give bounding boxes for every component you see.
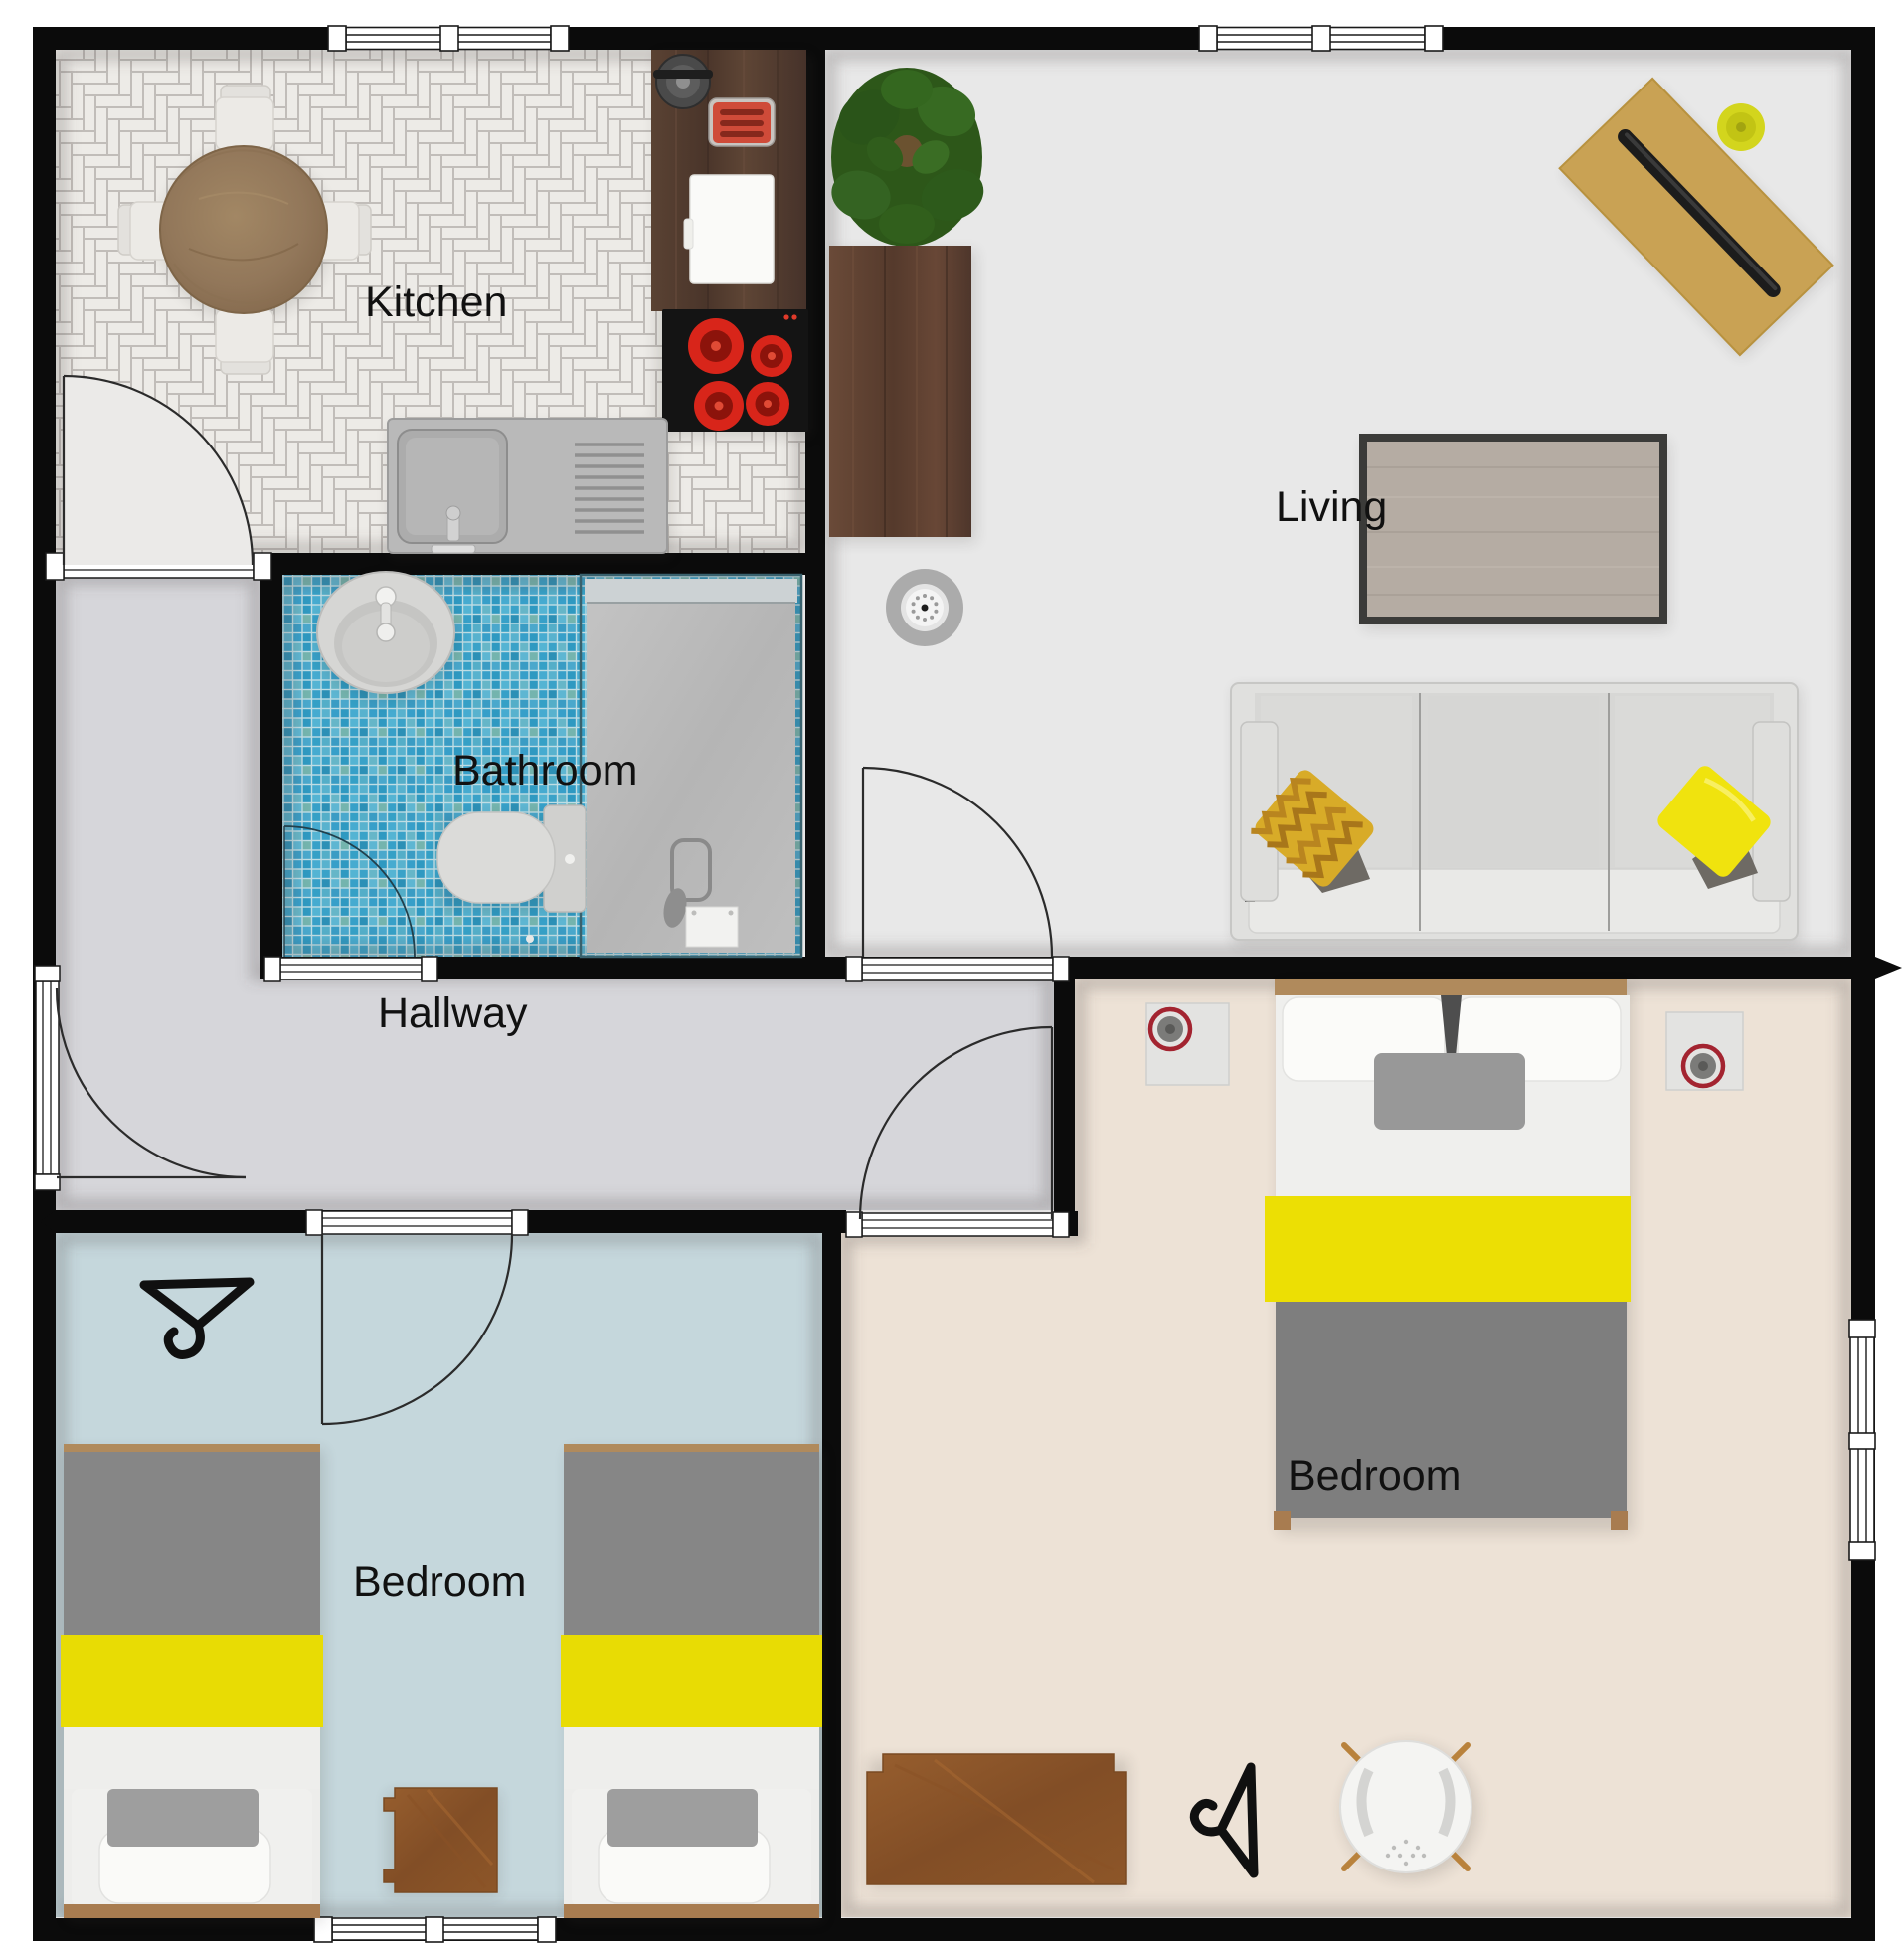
svg-text:Bedroom: Bedroom [1288,1452,1461,1500]
svg-text:Kitchen: Kitchen [365,278,507,326]
svg-text:Living: Living [1276,483,1387,531]
svg-text:Bathroom: Bathroom [452,747,637,795]
svg-text:Hallway: Hallway [378,989,528,1037]
svg-text:Bedroom: Bedroom [353,1558,526,1606]
